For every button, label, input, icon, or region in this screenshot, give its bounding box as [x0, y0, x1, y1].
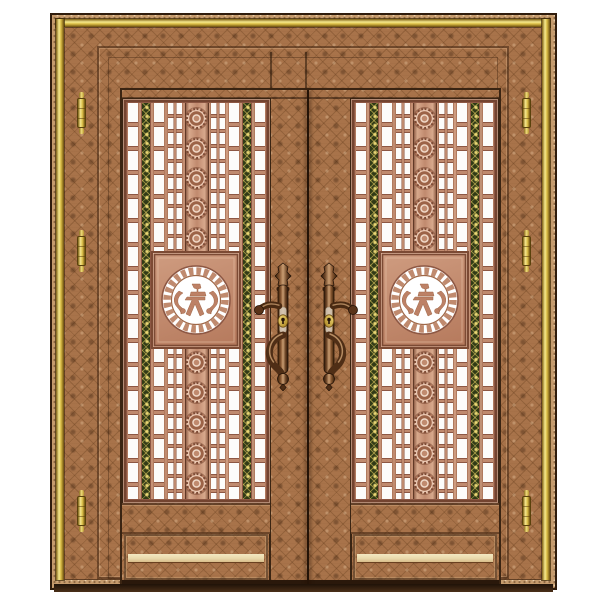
- medallion-fretwork-graphic: [153, 253, 239, 347]
- door-hinge-right: [522, 490, 531, 532]
- lattice-panel: [351, 99, 498, 503]
- rosette-stack: [413, 347, 437, 499]
- leaf-header-seam: [305, 52, 307, 90]
- page-background: { "image": { "kind": "product photo", "s…: [0, 0, 600, 600]
- hinge-barrel: [77, 236, 86, 266]
- door-hinge-left: [77, 490, 86, 532]
- pane-column: [482, 103, 494, 499]
- rosette-ornament: [414, 382, 435, 403]
- door-hinge-right: [522, 92, 531, 134]
- green-band: [242, 103, 252, 499]
- rosette-ornament: [414, 443, 435, 464]
- lattice-panel: [123, 99, 270, 503]
- hinge-barrel: [522, 98, 531, 128]
- green-band: [470, 103, 480, 499]
- hinge-finial: [79, 526, 84, 532]
- hinge-finial: [524, 526, 529, 532]
- hinge-barrel: [77, 98, 86, 128]
- hinge-barrel: [522, 236, 531, 266]
- handle-finial: [321, 263, 337, 288]
- gold-trim-left: [56, 19, 64, 580]
- door-leaves: [122, 90, 499, 584]
- kick-panel: [353, 534, 497, 580]
- lock-rail: [351, 503, 499, 534]
- handle-finial: [275, 263, 291, 288]
- hinge-finial: [79, 128, 84, 134]
- rosette-ornament: [414, 473, 435, 494]
- rosette-ornament: [414, 228, 435, 249]
- rosette-ornament: [186, 198, 207, 219]
- leaf-header-seam: [270, 52, 272, 90]
- hinge-barrel: [522, 496, 531, 526]
- rosette-ornament: [414, 352, 435, 373]
- rosette-ornament: [414, 412, 435, 433]
- rosette-ornament: [186, 108, 207, 129]
- rosette-ornament: [414, 168, 435, 189]
- door-handle-graphic: [314, 261, 358, 391]
- door-hinge-left: [77, 92, 86, 134]
- green-band: [141, 103, 151, 499]
- rosette-ornament: [186, 352, 207, 373]
- door-handle-graphic: [254, 261, 298, 391]
- fretwork-medallion: [153, 253, 239, 347]
- door-handle-right: [314, 261, 358, 391]
- meeting-stile-seam: [307, 90, 309, 584]
- hinge-barrel: [77, 496, 86, 526]
- hinge-finial: [524, 128, 529, 134]
- threshold: [54, 584, 553, 592]
- rosette-ornament: [186, 168, 207, 189]
- rosette-ornament: [414, 108, 435, 129]
- door-hinge-left: [77, 230, 86, 272]
- rosette-ornament: [186, 412, 207, 433]
- rosette-stack: [185, 103, 209, 253]
- rosette-ornament: [414, 198, 435, 219]
- medallion-fretwork-graphic: [381, 253, 467, 347]
- rosette-ornament: [186, 473, 207, 494]
- door-handle-left: [254, 261, 298, 391]
- fretwork-medallion: [381, 253, 467, 347]
- pane-column: [127, 103, 139, 499]
- rosette-ornament: [186, 443, 207, 464]
- gold-trim-right: [542, 19, 550, 580]
- rosette-ornament: [186, 138, 207, 159]
- rosette-ornament: [414, 138, 435, 159]
- lock-rail: [122, 503, 270, 534]
- hinge-finial: [524, 266, 529, 272]
- hinge-finial: [79, 266, 84, 272]
- door: [50, 13, 557, 590]
- gold-trim-top: [56, 19, 550, 27]
- rosette-ornament: [186, 382, 207, 403]
- door-hinge-right: [522, 230, 531, 272]
- rosette-stack: [185, 347, 209, 499]
- green-band: [369, 103, 379, 499]
- rosette-ornament: [186, 228, 207, 249]
- kick-panel: [124, 534, 268, 580]
- rosette-stack: [413, 103, 437, 253]
